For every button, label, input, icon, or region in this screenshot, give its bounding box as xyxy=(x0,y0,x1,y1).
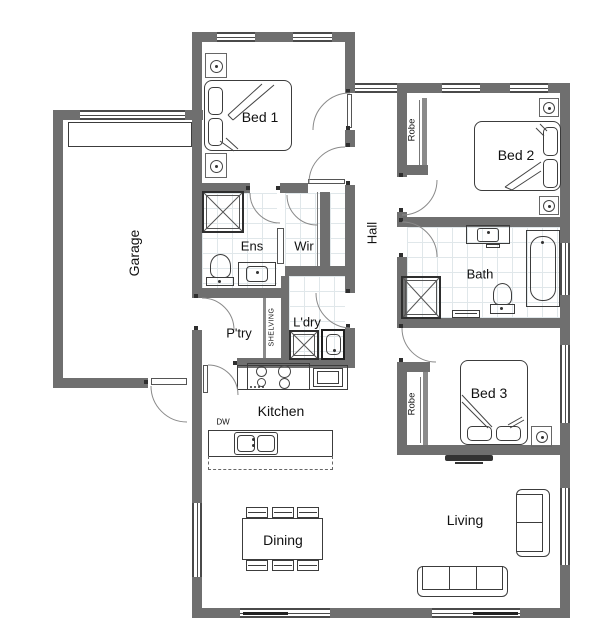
door-jamb xyxy=(346,324,350,328)
cooktop-knob xyxy=(258,386,260,388)
bed1-pillow xyxy=(208,87,223,115)
door-jamb xyxy=(399,324,403,328)
door-jamb xyxy=(276,186,280,190)
light-symbol xyxy=(205,53,227,78)
ens-toilet-button xyxy=(218,280,221,283)
wall-bed1-bottom-b xyxy=(280,183,308,193)
room-label-hall: Hall xyxy=(365,222,380,244)
wir-floor xyxy=(285,193,345,266)
bath-mat xyxy=(452,310,480,318)
bed2-pillow xyxy=(543,159,558,188)
ens-toilet-bowl xyxy=(210,254,231,278)
sink-tap xyxy=(252,438,255,441)
door-jamb xyxy=(194,326,198,330)
room-label-ldry: L'dry xyxy=(293,315,321,330)
wall-left-mid-upper xyxy=(192,110,202,298)
door-jamb xyxy=(346,143,350,147)
dining-chair xyxy=(272,507,294,518)
light-symbol xyxy=(205,153,227,178)
light-symbol xyxy=(531,426,552,447)
window-bed1-left xyxy=(217,32,255,42)
label-dishwasher: DW xyxy=(216,418,229,427)
washing-machine xyxy=(289,330,319,360)
wall-hall-left-a xyxy=(345,32,355,93)
room-label-ens: Ens xyxy=(241,239,263,254)
wall-robe3-left xyxy=(397,372,407,455)
ens-wir-door-leaf xyxy=(277,228,284,264)
light-symbol xyxy=(539,196,559,215)
sofa-divider xyxy=(476,567,477,589)
door-jamb xyxy=(399,358,403,362)
ens-shower xyxy=(202,191,244,233)
bath-tap xyxy=(487,231,490,234)
wall-ens-bottom xyxy=(202,288,287,298)
sliding-door-leaf-left xyxy=(243,612,288,615)
bed3-pillow xyxy=(467,426,492,441)
wall-robe3-top xyxy=(397,362,430,372)
sliding-door-leaf-right xyxy=(473,612,518,615)
robe2-shelf-line xyxy=(419,100,420,165)
burner xyxy=(279,378,290,389)
wall-hall-left-c xyxy=(345,185,355,293)
door-jamb xyxy=(346,89,350,93)
ens-tap xyxy=(256,271,259,274)
window-bed2-left xyxy=(442,83,480,93)
wall-oven-inner xyxy=(317,371,339,384)
door-jamb xyxy=(346,181,350,185)
window-living-right xyxy=(560,488,570,565)
bed2-door-arc xyxy=(402,180,437,215)
dining-chair xyxy=(246,507,268,518)
cooktop-knob xyxy=(262,386,264,388)
bed3-pillow xyxy=(496,426,521,441)
bath-shower xyxy=(401,276,441,319)
wall-bath-bottom xyxy=(397,318,560,328)
burner xyxy=(278,365,291,378)
door-jamb xyxy=(246,186,250,190)
wir-shelf-line xyxy=(317,192,318,266)
label-shelving: SHELVING xyxy=(269,308,276,347)
door-jamb xyxy=(144,380,148,384)
room-label-dining: Dining xyxy=(263,532,303,548)
room-label-bed1: Bed 1 xyxy=(242,109,279,125)
wall-wir-vertical xyxy=(320,192,330,266)
bath-toilet-button xyxy=(500,307,503,310)
window-hall-top xyxy=(355,83,397,93)
garage-entry-door-arc xyxy=(151,386,187,422)
island-overhang xyxy=(208,456,333,470)
wall-left-lower xyxy=(192,378,202,618)
bath-vanity-step xyxy=(486,244,500,248)
wall-laundry-left xyxy=(281,276,289,358)
window-bed3-right xyxy=(560,345,570,423)
dining-chair xyxy=(297,560,319,571)
ens-basin xyxy=(246,266,268,282)
label-robe-bed3: Robe xyxy=(407,393,418,416)
bathtub-tap xyxy=(541,241,544,244)
bed1-door-arc xyxy=(313,93,350,130)
pantry-door-arc xyxy=(208,365,238,395)
wir-door-leaf xyxy=(308,179,345,184)
cooktop-knob xyxy=(254,386,256,388)
cooktop-knob xyxy=(250,386,252,388)
light-symbol xyxy=(539,98,559,117)
room-label-bath: Bath xyxy=(467,267,494,282)
armchair-seat xyxy=(516,494,543,552)
bathtub-inner xyxy=(530,236,556,301)
window-bed1-right xyxy=(293,32,332,42)
door-jamb xyxy=(346,289,350,293)
bed3-door-arc xyxy=(402,328,436,362)
tv-stand xyxy=(455,462,483,464)
room-label-ptry: P'try xyxy=(226,326,252,341)
room-label-bed3: Bed 3 xyxy=(471,385,508,401)
wall-robe2-right xyxy=(422,98,427,165)
tv xyxy=(445,455,493,461)
door-jamb xyxy=(399,173,403,177)
dining-chair xyxy=(297,507,319,518)
dining-chair xyxy=(272,560,294,571)
pantry-door-leaf xyxy=(203,365,208,393)
wall-wir-bottom xyxy=(285,266,355,276)
bath-toilet-bowl xyxy=(493,283,512,305)
garage-door-opening xyxy=(80,110,185,120)
burner xyxy=(256,366,267,377)
wall-garage-bottom xyxy=(53,378,148,388)
laundry-tap xyxy=(333,349,336,352)
room-label-wir: Wir xyxy=(294,239,314,254)
door-jamb xyxy=(399,208,403,212)
wall-hall-left-d xyxy=(345,328,355,362)
sink-bowl xyxy=(257,435,275,452)
window-bath-right xyxy=(560,243,570,295)
wall-garage-left xyxy=(53,110,63,388)
bed2-pillow xyxy=(543,127,558,156)
wall-left-mid-lower xyxy=(192,330,202,378)
garage-entry-door-leaf xyxy=(151,378,187,385)
room-label-kitchen: Kitchen xyxy=(258,403,305,419)
sofa-divider xyxy=(449,567,450,589)
door-jamb xyxy=(194,294,198,298)
sofa-seat xyxy=(422,566,503,590)
garage-roller-door xyxy=(68,122,192,147)
door-jamb xyxy=(346,126,350,130)
room-label-living: Living xyxy=(447,512,484,528)
window-dining-left xyxy=(192,503,202,577)
bed1-door-leaf xyxy=(347,94,352,128)
bath-mat-line xyxy=(455,313,477,314)
door-jamb xyxy=(399,253,403,257)
wall-shelving-left xyxy=(263,298,266,358)
sink-tap xyxy=(252,444,255,447)
door-jamb xyxy=(399,218,403,222)
robe3-shelf-line xyxy=(420,377,421,443)
label-robe-bed2: Robe xyxy=(407,119,418,142)
wir-door-arc xyxy=(309,147,345,183)
window-bed2-right xyxy=(510,83,548,93)
bed1-pillow xyxy=(208,118,223,146)
wall-bed1-left xyxy=(192,32,202,120)
wall-robe3-right xyxy=(423,372,428,445)
room-label-garage: Garage xyxy=(126,230,142,277)
dining-chair xyxy=(246,560,268,571)
floor-plan: Garage Bed 1 Bed 2 Bed 3 Ens Wir Hall Ba… xyxy=(0,0,610,639)
room-label-bed2: Bed 2 xyxy=(498,147,535,163)
armchair-divider xyxy=(517,522,542,523)
